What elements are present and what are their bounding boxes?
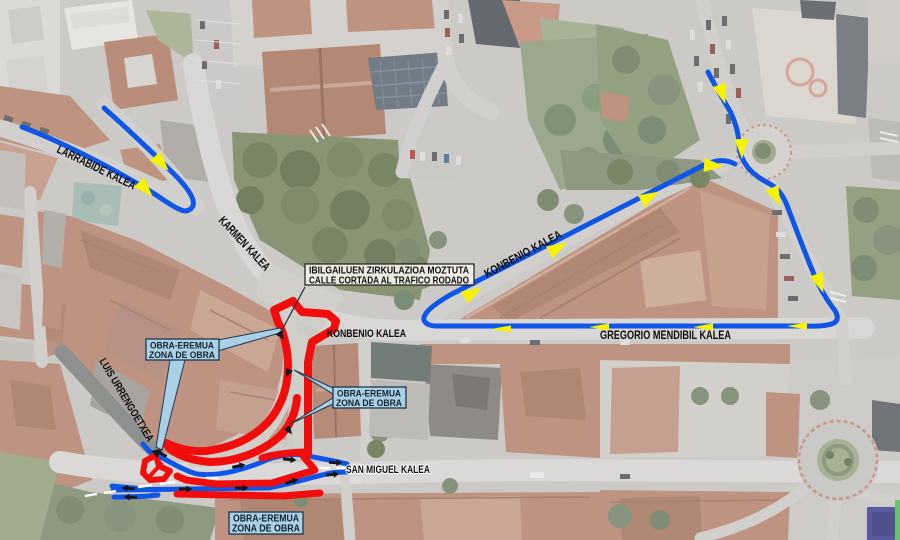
svg-text:ZONA DE OBRA: ZONA DE OBRA: [149, 350, 215, 361]
svg-text:ZONA DE OBRA: ZONA DE OBRA: [232, 524, 300, 535]
svg-text:ZONA DE OBRA: ZONA DE OBRA: [336, 398, 402, 409]
svg-text:KONBENIO KALEA: KONBENIO KALEA: [327, 328, 406, 340]
svg-text:GREGORIO MENDIBIL KALEA: GREGORIO MENDIBIL KALEA: [600, 330, 731, 342]
svg-text:CALLE CORTADA AL TRAFICO RODAD: CALLE CORTADA AL TRAFICO RODADO: [309, 276, 469, 287]
svg-text:SAN MIGUEL KALEA: SAN MIGUEL KALEA: [346, 464, 430, 476]
